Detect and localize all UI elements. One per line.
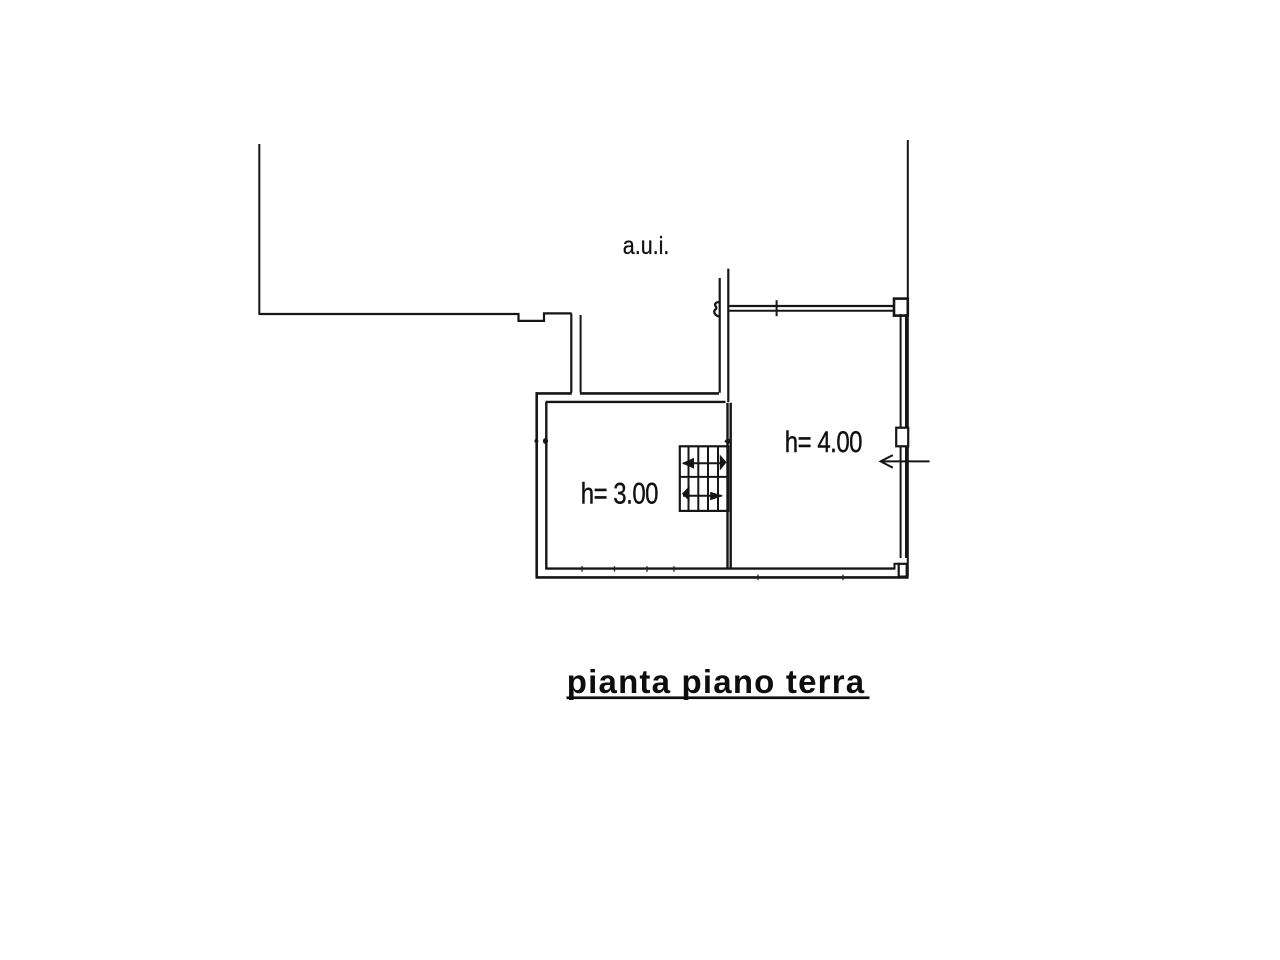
svg-text:pianta piano terra: pianta piano terra — [567, 663, 866, 700]
svg-text:h= 3.00: h= 3.00 — [581, 476, 659, 510]
svg-text:a.u.i.: a.u.i. — [623, 231, 670, 259]
svg-text:h= 4.00: h= 4.00 — [785, 424, 863, 458]
